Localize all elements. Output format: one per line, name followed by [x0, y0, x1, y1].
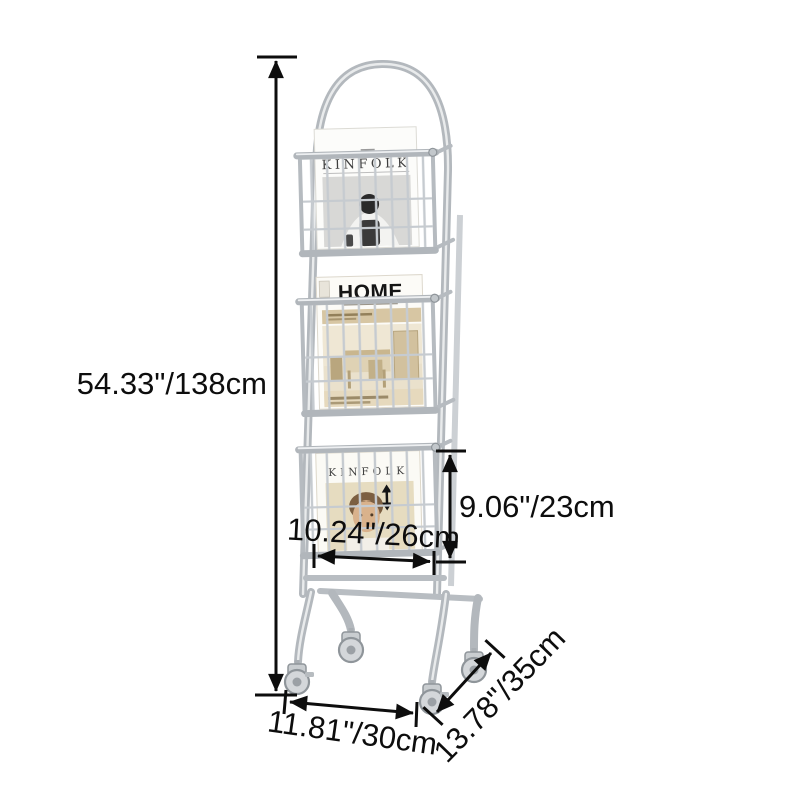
rack-diagram-svg: KINFOLK [0, 0, 800, 800]
basket-height-dimension: 9.06"/23cm [436, 451, 615, 562]
wire-basket-middle [299, 294, 442, 414]
caster-back-left [339, 628, 363, 662]
base-width-dimension: 11.81"/30cm [266, 690, 440, 762]
base-rear-crossbar [320, 591, 480, 599]
basket-hook [431, 294, 439, 302]
basket-middle: HOME [298, 274, 454, 414]
back-left-leg [332, 593, 351, 630]
product-dimension-diagram: KINFOLK [0, 0, 800, 800]
brake-tab [305, 672, 314, 677]
base-legs [298, 592, 478, 682]
front-right-leg-highlight [432, 594, 446, 682]
caster-back-right [462, 648, 486, 682]
basket-height-label: 9.06"/23cm [459, 489, 615, 524]
cover-price-tag [319, 281, 329, 297]
brake-tab [440, 692, 449, 697]
wire-basket-top [297, 148, 440, 254]
magazine-rack-illustration: KINFOLK [285, 64, 486, 714]
height-dimension: 54.33"/138cm [77, 57, 297, 695]
caster-wheels [285, 628, 486, 714]
back-right-leg [474, 598, 478, 650]
basket-top: KINFOLK [296, 126, 453, 254]
basket-width-dimension: 10.24"/26cm [286, 512, 461, 575]
basket-hook [429, 148, 437, 156]
height-label: 54.33"/138cm [77, 366, 267, 401]
base-width-label: 11.81"/30cm [266, 703, 440, 761]
caster-front-left [285, 660, 314, 694]
